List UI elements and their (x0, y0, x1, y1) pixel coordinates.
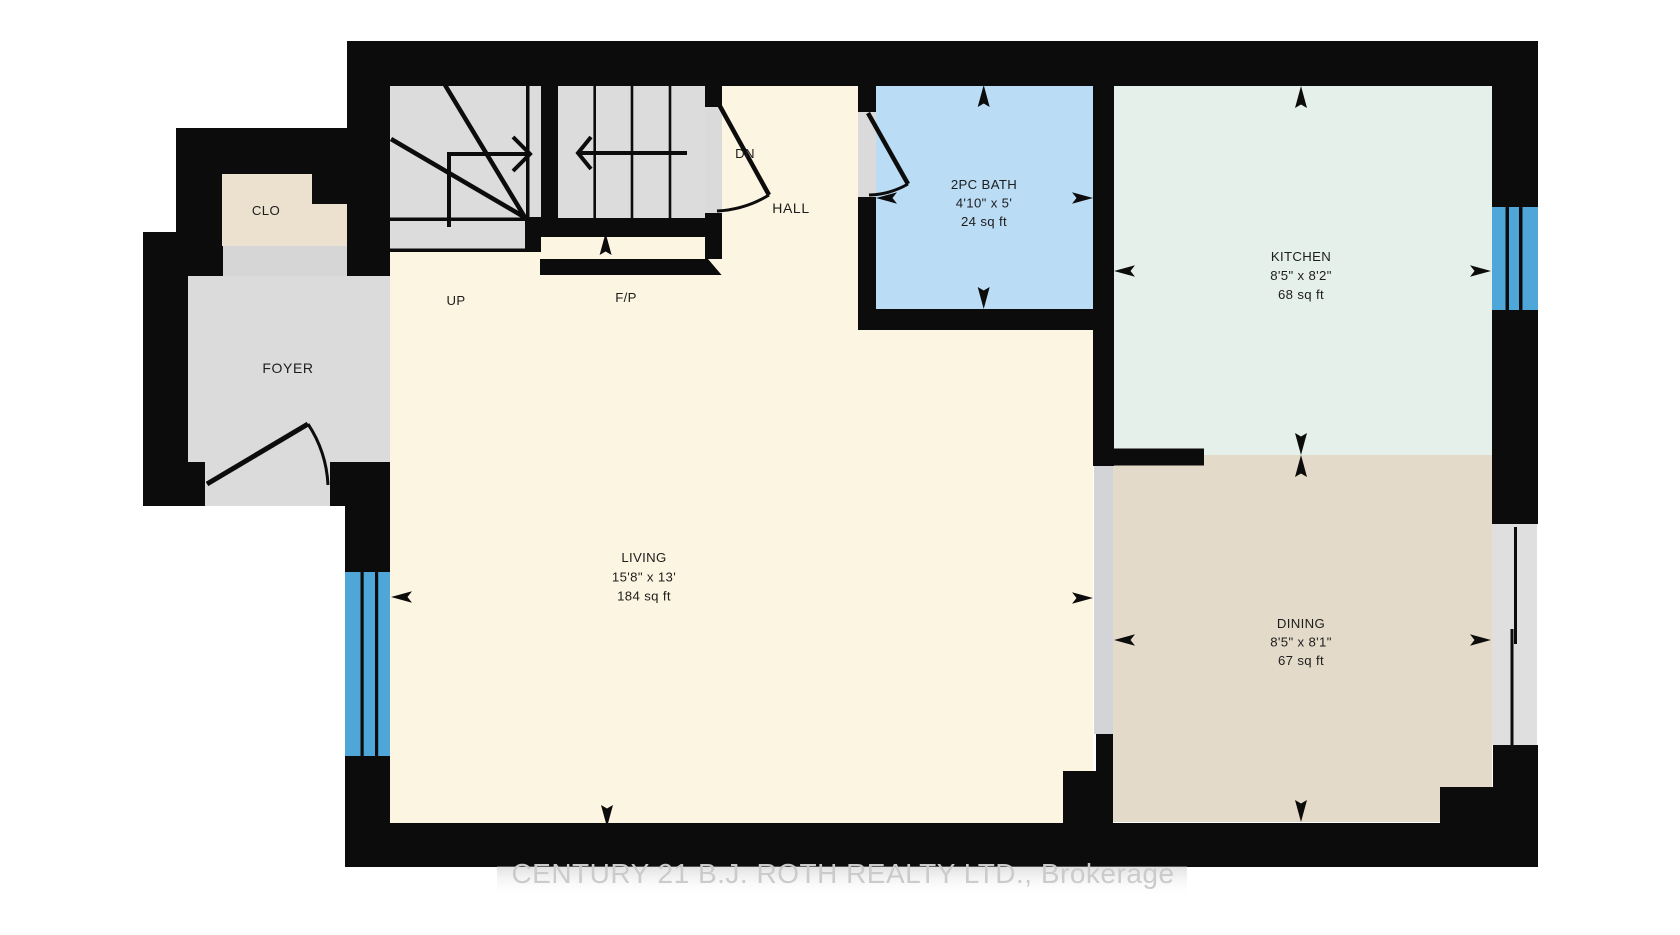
svg-text:68 sq ft: 68 sq ft (1278, 287, 1324, 302)
svg-text:CENTURY 21 B.J. ROTH REALTY LT: CENTURY 21 B.J. ROTH REALTY LTD., Broker… (511, 858, 1174, 889)
svg-text:8'5" x 8'2": 8'5" x 8'2" (1270, 268, 1332, 283)
svg-text:67 sq ft: 67 sq ft (1278, 653, 1324, 668)
svg-text:DINING: DINING (1277, 616, 1325, 631)
svg-text:24 sq ft: 24 sq ft (961, 214, 1007, 229)
svg-text:4'10" x 5': 4'10" x 5' (956, 196, 1012, 211)
svg-text:CLO: CLO (252, 203, 280, 218)
svg-text:UP: UP (446, 293, 465, 308)
svg-text:KITCHEN: KITCHEN (1271, 249, 1331, 264)
svg-text:8'5" x 8'1": 8'5" x 8'1" (1270, 635, 1332, 650)
svg-text:184 sq ft: 184 sq ft (617, 589, 671, 604)
svg-text:F/P: F/P (615, 290, 637, 305)
svg-text:HALL: HALL (772, 200, 809, 216)
svg-text:15'8" x 13': 15'8" x 13' (612, 570, 676, 585)
svg-text:FOYER: FOYER (262, 360, 313, 376)
svg-text:LIVING: LIVING (621, 550, 666, 565)
svg-text:2PC BATH: 2PC BATH (951, 177, 1017, 192)
svg-text:DN: DN (735, 146, 755, 161)
